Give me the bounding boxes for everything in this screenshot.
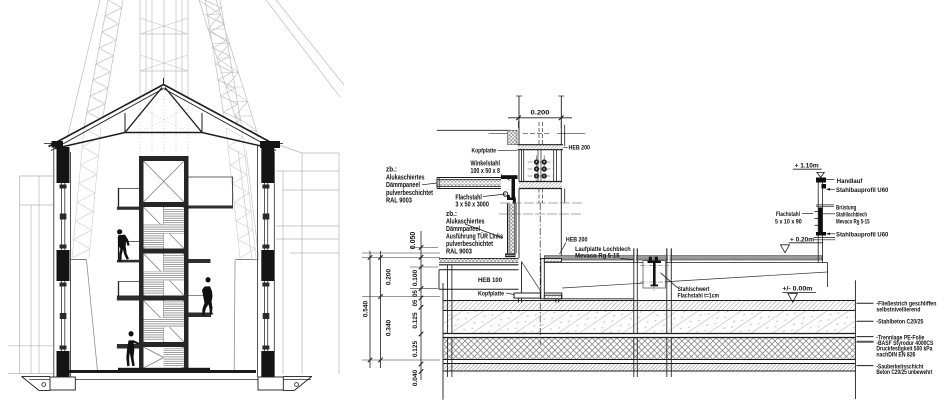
svg-text:+ 0.20m: + 0.20m (790, 236, 814, 243)
svg-text:HEB 200: HEB 200 (566, 236, 588, 243)
svg-text:HEB 100: HEB 100 (478, 277, 502, 284)
svg-text:+ 1.10m: + 1.10m (795, 163, 819, 170)
svg-text:0.040: 0.040 (412, 369, 419, 386)
svg-text:Brüstung: Brüstung (836, 204, 856, 211)
svg-text:Stahlbauprofil U60: Stahlbauprofil U60 (836, 231, 889, 238)
svg-text:0.340: 0.340 (386, 319, 393, 336)
svg-text:0.125: 0.125 (412, 312, 419, 329)
svg-text:Kopfplatte: Kopfplatte (478, 290, 504, 297)
svg-text:Mevaco Rg 5-15: Mevaco Rg 5-15 (575, 253, 620, 260)
svg-text:0.050: 0.050 (410, 232, 417, 250)
svg-text:selbstnivellierend: selbstnivellierend (876, 307, 920, 313)
svg-text:0.200: 0.200 (531, 110, 550, 117)
svg-text:0.540: 0.540 (363, 300, 370, 317)
svg-text:05: 05 (413, 299, 419, 306)
svg-text:5 x 10 x 90: 5 x 10 x 90 (775, 219, 802, 226)
svg-text:Stahllochblech: Stahllochblech (836, 211, 867, 218)
svg-text:Beton C20/25 unbewehrt: Beton C20/25 unbewehrt (876, 370, 932, 376)
svg-text:Flachstahl: Flachstahl (776, 211, 800, 218)
svg-text:Winkelstahl: Winkelstahl (471, 161, 501, 168)
svg-text:Flachstahl: Flachstahl (455, 194, 482, 201)
svg-text:-Stahlbeton C20/25: -Stahlbeton C20/25 (876, 320, 924, 326)
svg-text:100 x 50 x 8: 100 x 50 x 8 (471, 168, 501, 175)
svg-text:RAL 9003: RAL 9003 (446, 247, 472, 256)
svg-text:+/- 0.00m: +/- 0.00m (782, 286, 812, 293)
svg-text:05: 05 (413, 290, 419, 297)
svg-text:0.100: 0.100 (412, 269, 419, 286)
svg-text:HEB 200: HEB 200 (569, 145, 591, 152)
svg-text:Handlauf: Handlauf (837, 178, 863, 185)
svg-text:0.125: 0.125 (412, 340, 419, 357)
svg-text:Kopfplatte: Kopfplatte (472, 148, 497, 155)
svg-text:nachDIN EN 826: nachDIN EN 826 (876, 352, 916, 358)
svg-text:Mevaco Rg 5-15: Mevaco Rg 5-15 (836, 219, 870, 226)
svg-text:Flachstahl t=1cm: Flachstahl t=1cm (678, 293, 720, 300)
svg-text:3 x 50 x 3000: 3 x 50 x 3000 (455, 201, 489, 208)
svg-text:0.200: 0.200 (386, 268, 393, 285)
svg-text:RAL 9003: RAL 9003 (386, 196, 412, 205)
svg-text:Stahlbauprofil U60: Stahlbauprofil U60 (836, 187, 889, 194)
